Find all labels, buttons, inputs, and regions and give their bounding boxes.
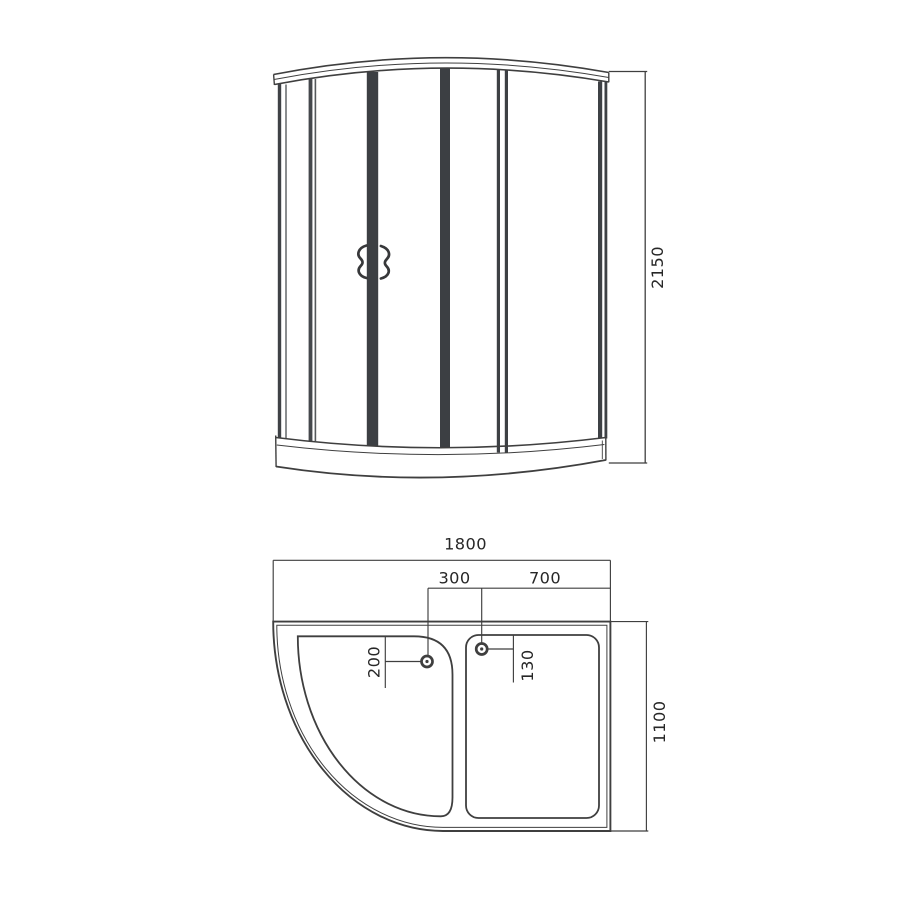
width-dim-label: 1800 xyxy=(444,535,487,554)
plan-view: 1800 300 700 1100 200 130 xyxy=(273,535,669,832)
right-section-label: 700 xyxy=(529,569,561,588)
front-view: 2150 xyxy=(274,58,668,478)
right-corner-post-b xyxy=(605,82,608,439)
right-corner-post-a xyxy=(598,82,602,439)
left-corner-post-highlight xyxy=(285,85,286,439)
left-drain-center xyxy=(425,660,428,663)
left-door-stile xyxy=(367,72,378,446)
right-door-handle xyxy=(381,246,389,279)
top-rail-left-cap xyxy=(274,75,275,86)
depth-dim-label: 1100 xyxy=(650,701,669,744)
height-dimension: 2150 xyxy=(609,72,667,464)
shower-enclosure-technical-drawing: 2150 1800 xyxy=(0,0,900,900)
depth-dimension: 1100 xyxy=(610,622,669,831)
left-corner-post xyxy=(278,84,281,438)
right-drain-center xyxy=(480,647,483,650)
left-glass-edge-thin xyxy=(315,79,317,441)
left-glass-edge xyxy=(309,79,313,441)
drain-spacing-label: 300 xyxy=(438,569,470,588)
right-door-stile xyxy=(440,69,450,448)
left-door-handle xyxy=(358,246,366,279)
right-drain-offset-label: 130 xyxy=(518,649,537,681)
left-drain-offset-label: 200 xyxy=(364,646,383,678)
tray-bottom-curve xyxy=(276,460,606,478)
fixed-panel-edge-a xyxy=(497,70,500,453)
height-dim-label: 2150 xyxy=(648,246,667,289)
fixed-panel-edge-b xyxy=(505,71,508,453)
frame-profiles xyxy=(278,69,608,453)
